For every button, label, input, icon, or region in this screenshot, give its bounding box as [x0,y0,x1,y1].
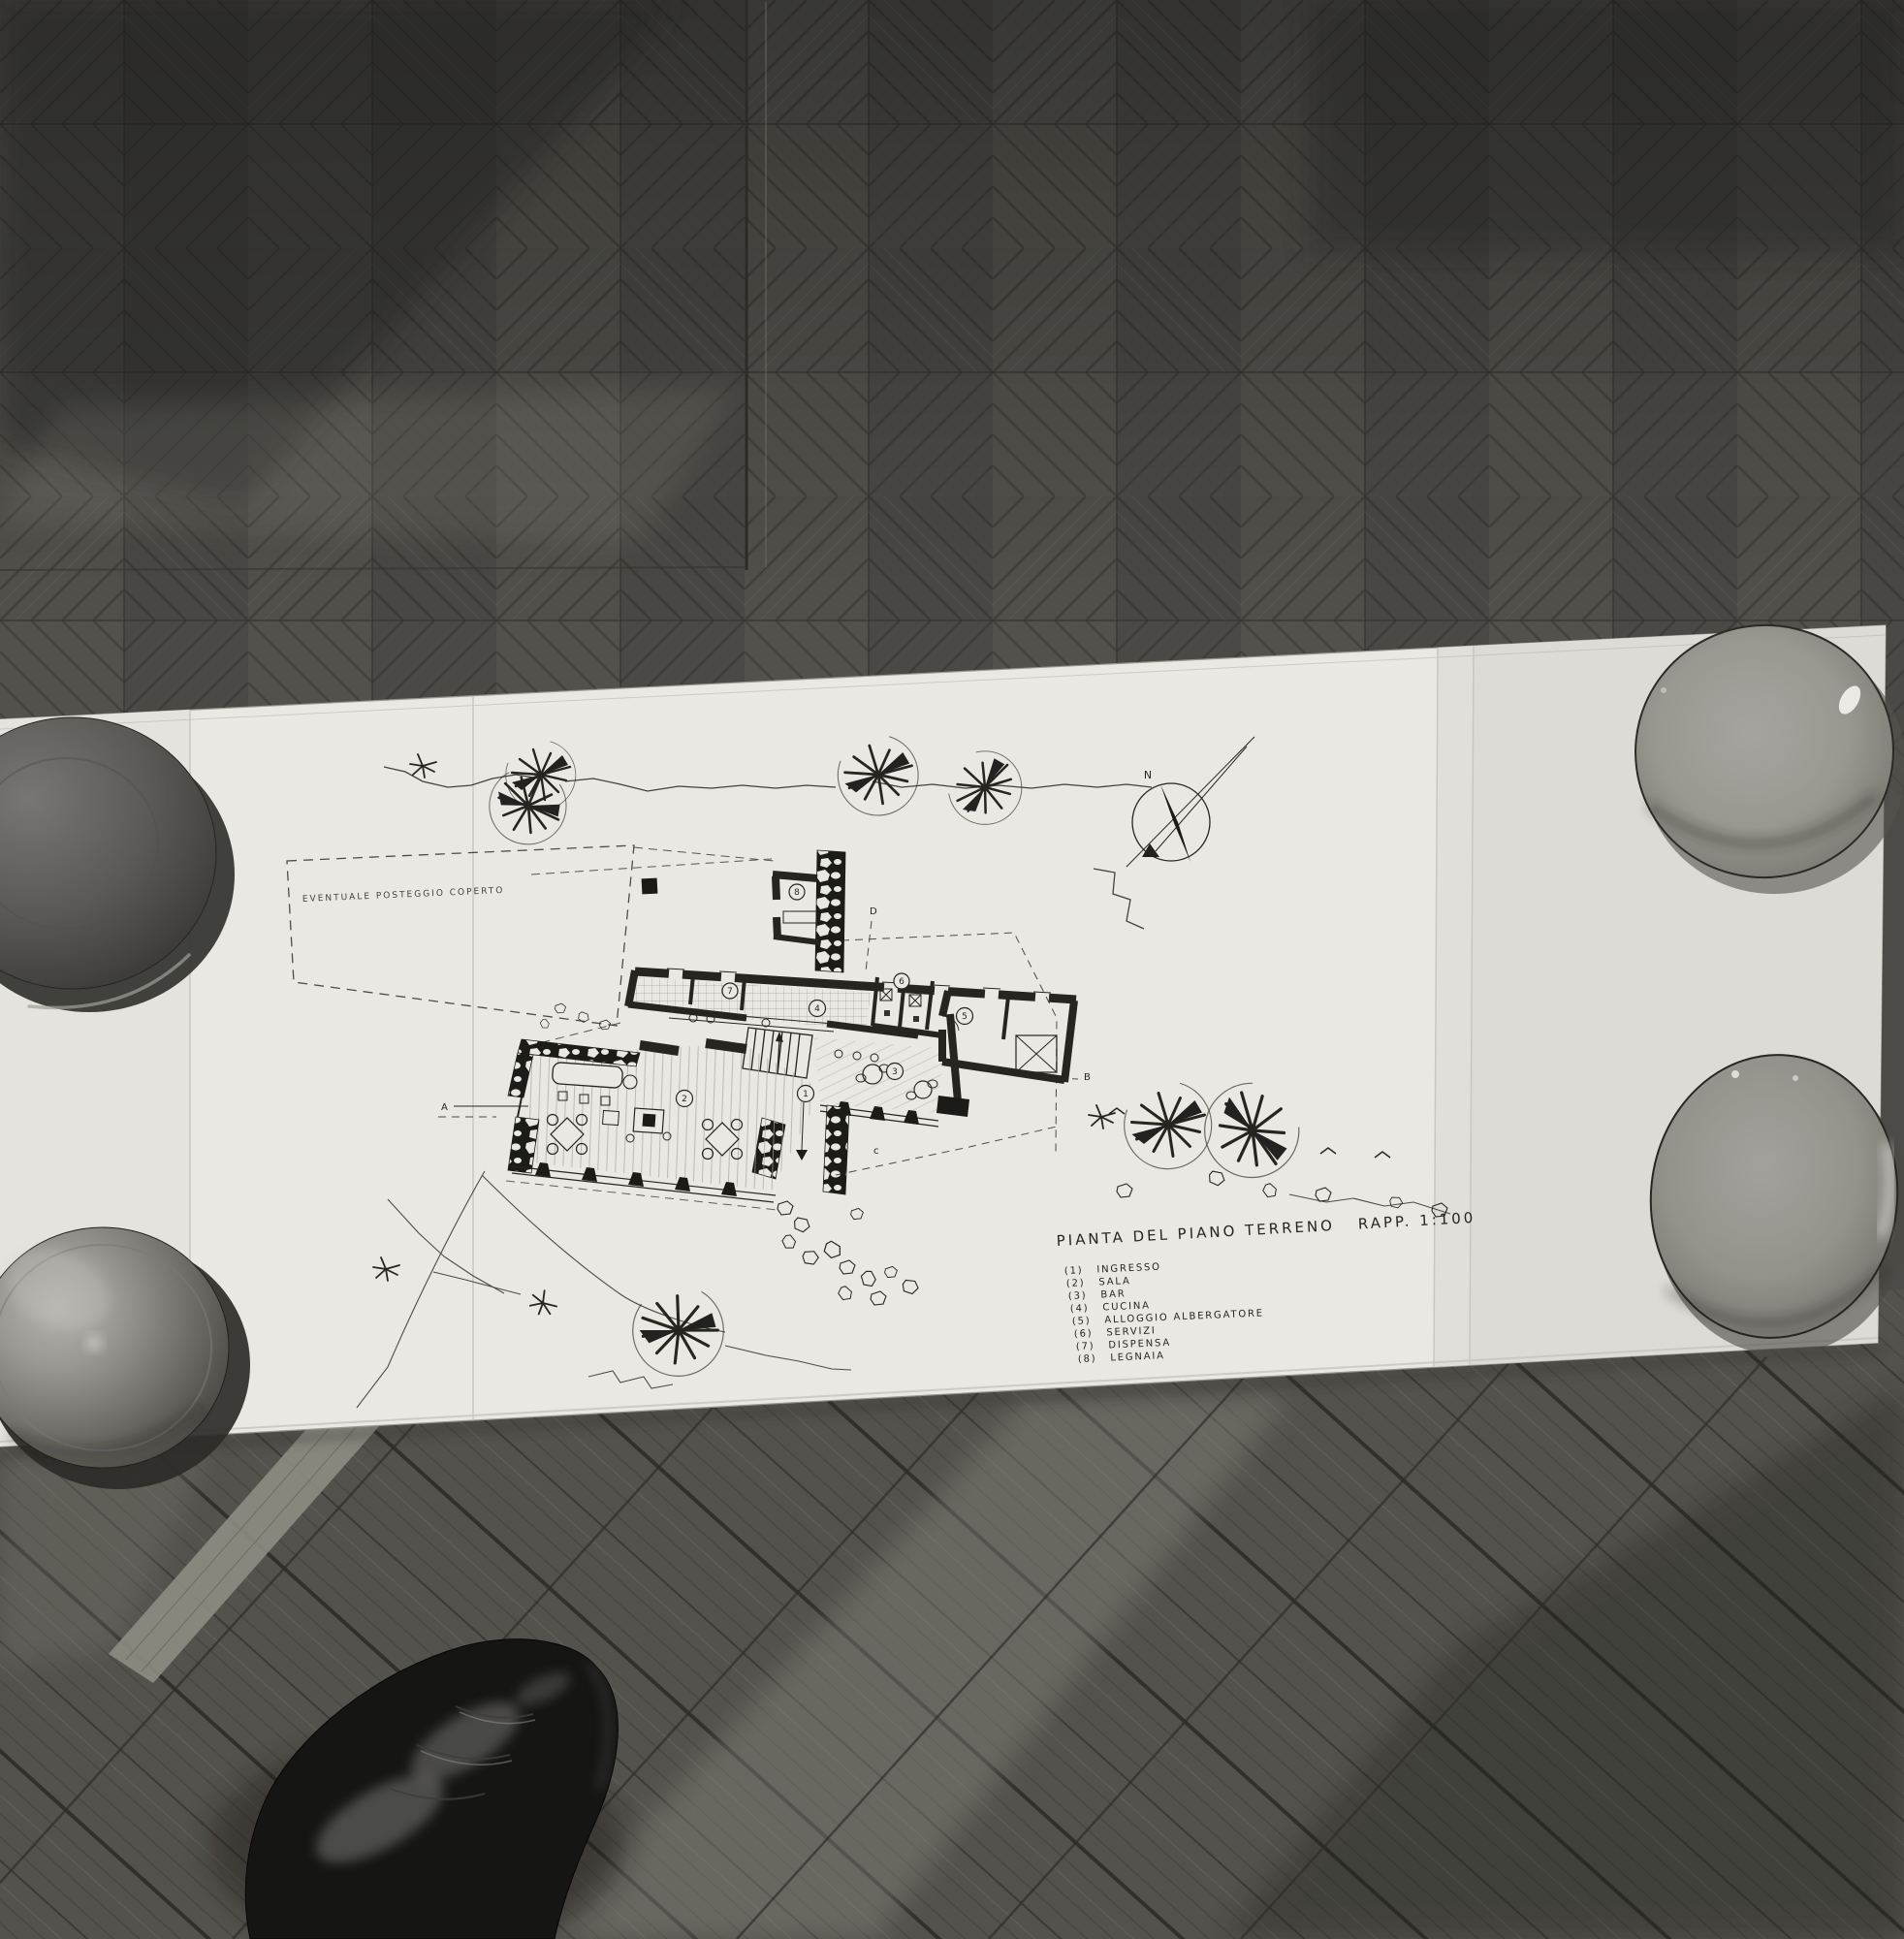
section-marker-d: D [870,906,877,917]
section-marker-c: c [873,1146,879,1157]
svg-text:4: 4 [814,1004,820,1014]
room-label: 7 [722,983,738,999]
svg-text:6: 6 [899,977,904,987]
room-label: 8 [789,884,805,900]
svg-text:3: 3 [892,1067,898,1077]
rubble-chimney-wall [815,850,845,972]
photo-architectural-plan-on-floor: N EVENTUALE POSTEGGIO COPERTO [0,0,1904,1939]
room-label: 6 [894,973,909,989]
room-label: 4 [809,1001,826,1017]
svg-text:1: 1 [803,1090,809,1099]
svg-text:5: 5 [962,1012,968,1022]
carport-pillar [642,878,658,895]
svg-text:7: 7 [727,987,733,997]
svg-text:8: 8 [794,888,800,898]
room-label: 2 [677,1091,693,1107]
section-marker-b: B [1084,1072,1091,1083]
room-label: 5 [957,1008,973,1025]
room-label: 1 [798,1086,814,1102]
section-marker-a: A [441,1102,448,1113]
north-label: N [1144,769,1152,781]
room-label: 3 [887,1064,904,1080]
svg-text:2: 2 [682,1095,687,1104]
